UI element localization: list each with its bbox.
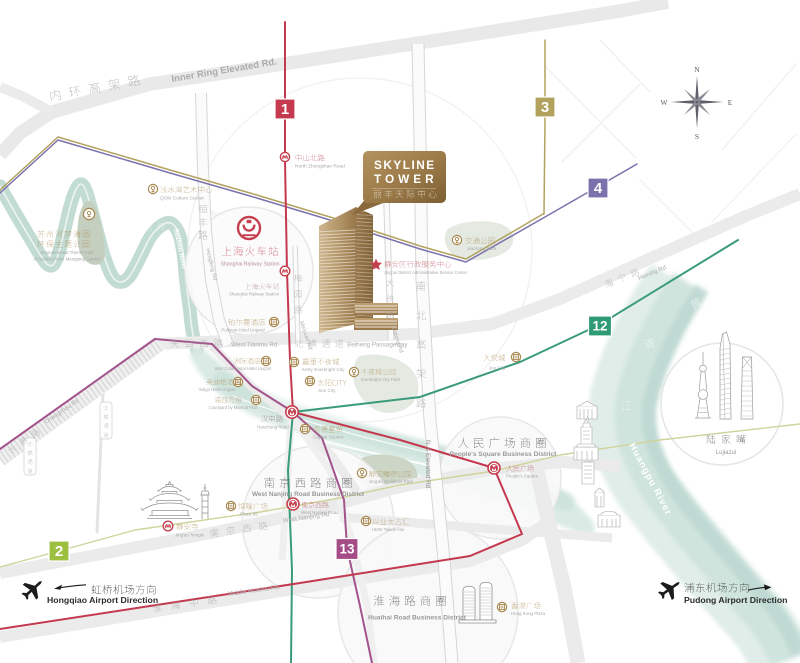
svg-text:Shanghai Railway Station: Shanghai Railway Station [229, 292, 280, 297]
svg-text:Sun City: Sun City [318, 388, 336, 393]
svg-text:Hong Kong Plaza: Hong Kong Plaza [511, 611, 546, 616]
svg-text:People's Square Business Distr: People's Square Business District [450, 451, 558, 458]
svg-text:Pullman Hotel Lingard: Pullman Hotel Lingard [221, 328, 265, 333]
svg-text:HKRI Taikoo Hui: HKRI Taikoo Hui [372, 527, 404, 532]
svg-text:Jing'an District Administrativ: Jing'an District Administrative Service … [384, 270, 468, 275]
svg-text:Huaihai Road Business District: Huaihai Road Business District [368, 615, 467, 622]
svg-text:S: S [695, 132, 699, 141]
svg-text:Jing'an Sculpture Park: Jing'an Sculpture Park [369, 479, 414, 484]
svg-text:E: E [728, 98, 733, 107]
svg-text:Plaza 66: Plaza 66 [240, 512, 258, 517]
svg-text:People's Square: People's Square [506, 474, 539, 479]
svg-text:Jing'an Temple: Jing'an Temple [175, 533, 205, 538]
svg-text:Lujiazui: Lujiazui [716, 450, 736, 456]
svg-text:Jiaotong Park: Jiaotong Park [467, 246, 497, 252]
svg-text:Shanghai Railway Station: Shanghai Railway Station [220, 262, 279, 268]
svg-text:Environmental Theme Park: Environmental Theme Park [40, 250, 94, 255]
svg-text:2: 2 [55, 543, 63, 560]
svg-text:QSW Culture Center: QSW Culture Center [160, 196, 204, 202]
svg-text:West Tianmu Rd.: West Tianmu Rd. [231, 342, 279, 349]
svg-text:Everbright City Park: Everbright City Park [361, 377, 401, 382]
svg-text:Inter Continental Hotel Ling'a: Inter Continental Hotel Ling'an [215, 366, 272, 371]
svg-text:Capital Square: Capital Square [313, 435, 344, 440]
svg-text:TOWER: TOWER [374, 172, 438, 186]
svg-text:1: 1 [281, 101, 289, 118]
svg-text:Hanzhong Road: Hanzhong Road [257, 425, 289, 430]
svg-text:4: 4 [594, 180, 603, 197]
svg-text:N-S Elevated Rd.: N-S Elevated Rd. [424, 440, 431, 490]
svg-text:North Zhongshan Road: North Zhongshan Road [295, 164, 345, 170]
svg-text:3: 3 [541, 99, 549, 116]
svg-text:West Nanjing Road: West Nanjing Road [301, 510, 339, 515]
svg-text:13: 13 [339, 542, 355, 557]
svg-text:N: N [694, 65, 700, 74]
svg-text:Courtyard by Marriott Puxi: Courtyard by Marriott Puxi [209, 405, 258, 410]
svg-text:W: W [660, 98, 668, 107]
svg-text:of Suzhou River Mengqing Garde: of Suzhou River Mengqing Garden [33, 257, 101, 262]
svg-text:12: 12 [592, 319, 607, 334]
svg-text:SKYLINE: SKYLINE [374, 158, 436, 172]
svg-text:Joy City: Joy City [489, 366, 506, 371]
svg-text:Kerry Everbright City: Kerry Everbright City [302, 367, 345, 372]
svg-text:Indigo Hotel Ling'an: Indigo Hotel Ling'an [199, 387, 237, 392]
svg-text:Pudong Airport Direction: Pudong Airport Direction [684, 595, 787, 605]
svg-text:West Nanjing Road Business Dis: West Nanjing Road Business District [252, 491, 365, 498]
svg-text:Hongqiao Airport Direction: Hongqiao Airport Direction [47, 595, 158, 605]
